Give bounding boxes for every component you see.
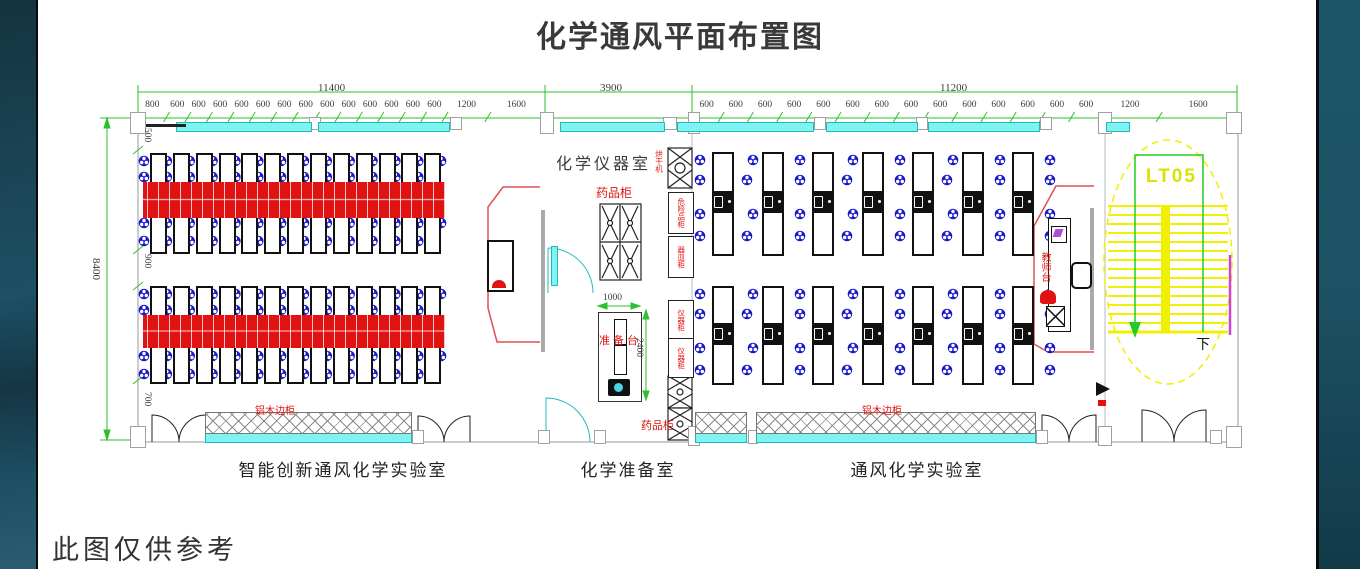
trilobe-stool-icon (942, 175, 953, 186)
room-label-right: 通风化学实验室 (851, 456, 984, 481)
disclaimer: 此图仅供参考 (52, 528, 238, 567)
bench-sink-section (762, 191, 784, 213)
fume-equipment-band (143, 182, 445, 218)
desk-x-box (1046, 306, 1065, 327)
left-side-cabinet-label: 铝木边柜 (255, 402, 295, 417)
wall-pier (1036, 430, 1048, 444)
wall-pier (450, 117, 462, 130)
dim-segment: 600 (1013, 100, 1042, 110)
instrument-cabinet-1-label: 仪器柜 (677, 309, 685, 332)
lab-bench (862, 152, 884, 256)
trilobe-stool-icon (139, 218, 150, 229)
trilobe-stool-icon (795, 309, 806, 320)
left-side-cabinet (205, 412, 412, 434)
window-strip (826, 122, 918, 132)
right-desk-sink (1040, 290, 1056, 304)
dim-segment: 1600 (1159, 100, 1237, 110)
vessel-cabinet: 器皿柜 (668, 236, 694, 278)
dim-segment: 600 (209, 100, 230, 110)
bench-sink-section (1012, 191, 1034, 213)
dim-segment: 600 (780, 100, 809, 110)
oven-label: 烘干机 (655, 150, 663, 173)
trilobe-stool-icon (748, 155, 759, 166)
trilobe-stool-icon (942, 365, 953, 376)
window-strip (756, 433, 1036, 443)
lab-bench (762, 286, 784, 385)
wall-left-middle (541, 210, 545, 352)
trilobe-stool-icon (695, 209, 706, 220)
trilobe-stool-icon (742, 231, 753, 242)
trilobe-stool-icon (795, 175, 806, 186)
trilobe-stool-icon (895, 155, 906, 166)
medicine-cabinet-top-label: 药品柜 (596, 184, 632, 201)
medicine-cabinet-glyph (600, 204, 641, 280)
slide-edge-left (0, 0, 38, 569)
dim-seg-700: 700 (142, 392, 152, 406)
slide: 化学通风平面布置图 (0, 0, 1360, 569)
trilobe-stool-icon (995, 309, 1006, 320)
bench-sink-section (812, 191, 834, 213)
flag-red-mark (1098, 400, 1106, 406)
trilobe-stool-icon (695, 309, 706, 320)
dim-seg-500: 500 (142, 128, 152, 142)
trilobe-stool-icon (942, 231, 953, 242)
dim-segment: 1600 (488, 100, 545, 110)
window-strip (1106, 122, 1130, 132)
wall-pier (412, 430, 424, 444)
bench-sink-section (862, 191, 884, 213)
dim-segment: 600 (424, 100, 445, 110)
dim-segment: 600 (231, 100, 252, 110)
window-strip (695, 433, 747, 443)
bench-sink-section (1012, 323, 1034, 345)
trilobe-stool-icon (842, 231, 853, 242)
trilobe-stool-icon (742, 309, 753, 320)
dim-segment: 600 (188, 100, 209, 110)
lab-bench (962, 152, 984, 256)
dim-segment: 600 (274, 100, 295, 110)
window-strip (677, 122, 814, 132)
trilobe-stool-icon (795, 365, 806, 376)
trilobe-stool-icon (895, 343, 906, 354)
trilobe-stool-icon (895, 309, 906, 320)
trilobe-stool-icon (748, 209, 759, 220)
trilobe-stool-icon (948, 343, 959, 354)
trilobe-stool-icon (895, 231, 906, 242)
trilobe-stool-icon (795, 155, 806, 166)
trilobe-stool-icon (948, 289, 959, 300)
trilobe-stool-icon (848, 343, 859, 354)
trilobe-stool-icon (139, 172, 150, 183)
dim-segment: 600 (838, 100, 867, 110)
wall-pier (1040, 117, 1052, 130)
dim-prep-width: 1000 (603, 293, 622, 303)
trilobe-stool-icon (995, 231, 1006, 242)
dim-segment: 600 (984, 100, 1013, 110)
dim-segment: 600 (359, 100, 380, 110)
dim-segment: 600 (295, 100, 316, 110)
trilobe-stool-icon (695, 175, 706, 186)
room-label-middle: 化学准备室 (581, 456, 676, 481)
right-side-cabinet-label: 铝木边柜 (862, 402, 902, 417)
dim-seg-900: 900 (142, 254, 152, 268)
trilobe-stool-icon (1045, 343, 1056, 354)
dim-segment: 800 (138, 100, 167, 110)
floor-plan-drawing (0, 0, 1360, 569)
wall-stub (146, 124, 186, 127)
trilobe-stool-icon (842, 309, 853, 320)
dim-segment: 600 (867, 100, 896, 110)
left-teacher-desk (487, 240, 514, 292)
bench-sink-section (962, 191, 984, 213)
trilobe-stool-icon (795, 289, 806, 300)
trilobe-stool-icon (895, 175, 906, 186)
stair-code: LT05 (1146, 166, 1197, 188)
trilobe-stool-icon (139, 156, 150, 167)
trilobe-stool-icon (995, 365, 1006, 376)
dim-segment: 600 (1042, 100, 1071, 110)
prep-table-label: 准备台 (599, 332, 641, 348)
wall-pier (1210, 430, 1222, 444)
bench-sink-section (762, 323, 784, 345)
trilobe-stool-icon (795, 231, 806, 242)
dim-segment: 600 (317, 100, 338, 110)
trilobe-stool-icon (795, 209, 806, 220)
hazmat-cabinet-label: 危险品柜 (677, 198, 685, 228)
stair-down-label: 下 (1196, 334, 1210, 354)
dim-right-total: 11200 (940, 82, 967, 94)
prep-sink (608, 379, 630, 396)
trilobe-stool-icon (695, 343, 706, 354)
wall-pier (1226, 112, 1242, 134)
wall-pier (540, 112, 554, 134)
window-strip (176, 122, 312, 132)
lab-bench (712, 286, 734, 385)
trilobe-stool-icon (995, 175, 1006, 186)
trilobe-stool-icon (1045, 365, 1056, 376)
trilobe-stool-icon (895, 365, 906, 376)
trilobe-stool-icon (842, 175, 853, 186)
wall-pier (594, 430, 606, 444)
bench-sink-section (912, 191, 934, 213)
dim-segment: 600 (896, 100, 925, 110)
monitor-icon (1051, 226, 1067, 243)
room-label-left: 智能创新通风化学实验室 (239, 456, 448, 481)
dim-segment: 600 (750, 100, 779, 110)
wall-pier (1098, 426, 1112, 446)
bench-sink-section (712, 323, 734, 345)
wall-pier (663, 117, 677, 130)
window-strip (928, 122, 1040, 132)
trilobe-stool-icon (842, 365, 853, 376)
page-title: 化学通风平面布置图 (0, 12, 1360, 56)
lab-bench (1012, 152, 1034, 256)
trilobe-stool-icon (695, 155, 706, 166)
dim-segment: 600 (692, 100, 721, 110)
dim-segment: 600 (926, 100, 955, 110)
pass-window (551, 246, 558, 286)
lab-bench (712, 152, 734, 256)
trilobe-stool-icon (948, 155, 959, 166)
wall-pier (814, 117, 826, 130)
lab-bench (912, 152, 934, 256)
lab-bench (862, 286, 884, 385)
trilobe-stool-icon (848, 155, 859, 166)
hazmat-cabinet: 危险品柜 (668, 192, 694, 234)
bench-sink-section (962, 323, 984, 345)
lab-bench (762, 152, 784, 256)
left-desk-sink (492, 280, 506, 288)
dim-segment: 600 (338, 100, 359, 110)
trilobe-stool-icon (995, 209, 1006, 220)
dim-segment: 600 (167, 100, 188, 110)
lab-bench (1012, 286, 1034, 385)
trilobe-stool-icon (695, 365, 706, 376)
dim-segment: 600 (402, 100, 423, 110)
window-strip (205, 433, 412, 443)
dim-segment: 1200 (445, 100, 488, 110)
trilobe-stool-icon (695, 231, 706, 242)
trilobe-stool-icon (1045, 155, 1056, 166)
trilobe-stool-icon (848, 209, 859, 220)
trilobe-stool-icon (848, 289, 859, 300)
lab-bench (812, 152, 834, 256)
teacher-station-label: 教师台 (1037, 252, 1052, 282)
trilobe-stool-icon (995, 155, 1006, 166)
trilobe-stool-icon (1045, 175, 1056, 186)
dim-left-total: 11400 (318, 82, 345, 94)
window-strip (560, 122, 665, 132)
lab-bench (912, 286, 934, 385)
instrument-cabinet-2-label: 仪器柜 (677, 347, 685, 370)
trilobe-stool-icon (995, 343, 1006, 354)
dim-segment: 600 (252, 100, 273, 110)
trilobe-stool-icon (748, 343, 759, 354)
prep-table (598, 312, 642, 402)
bench-sink-section (812, 323, 834, 345)
instrument-cabinet-1: 仪器柜 (668, 300, 694, 340)
wall-pier (130, 426, 146, 448)
fume-equipment-band (143, 315, 445, 348)
trilobe-stool-icon (695, 289, 706, 300)
trilobe-stool-icon (895, 289, 906, 300)
dim-segment: 600 (809, 100, 838, 110)
bench-sink-section (862, 323, 884, 345)
trilobe-stool-icon (742, 175, 753, 186)
medicine-cabinet-bottom-label: 药品柜 (641, 417, 674, 433)
trilobe-stool-icon (995, 289, 1006, 300)
trilobe-stool-icon (139, 305, 150, 316)
window-strip (318, 122, 450, 132)
section-flag-icon (1096, 382, 1110, 396)
wall-pier (1226, 426, 1242, 448)
trilobe-stool-icon (742, 365, 753, 376)
dim-middle-total: 3900 (600, 82, 622, 94)
trilobe-stool-icon (895, 209, 906, 220)
chair-icon (1071, 262, 1092, 289)
trilobe-stool-icon (139, 289, 150, 300)
trilobe-stool-icon (139, 236, 150, 247)
bench-sink-section (912, 323, 934, 345)
trilobe-stool-icon (795, 343, 806, 354)
bench-sink-section (712, 191, 734, 213)
instrument-room-label: 化学仪器室 (556, 150, 651, 174)
slide-edge-right (1316, 0, 1360, 569)
trilobe-stool-icon (948, 209, 959, 220)
dim-segment: 600 (955, 100, 984, 110)
trilobe-stool-icon (139, 369, 150, 380)
wall-pier (538, 430, 550, 444)
dim-segment: 600 (1072, 100, 1101, 110)
dim-segment: 600 (381, 100, 402, 110)
instrument-cabinet-2: 仪器柜 (668, 338, 694, 378)
right-side-cabinet-short (695, 412, 747, 434)
vessel-cabinet-label: 器皿柜 (677, 246, 685, 269)
lab-bench (812, 286, 834, 385)
trilobe-stool-icon (942, 309, 953, 320)
dim-segment: 600 (721, 100, 750, 110)
lab-bench (962, 286, 984, 385)
trilobe-stool-icon (139, 351, 150, 362)
dim-height-total: 8400 (90, 258, 102, 280)
dim-segment: 1200 (1101, 100, 1159, 110)
trilobe-stool-icon (748, 289, 759, 300)
